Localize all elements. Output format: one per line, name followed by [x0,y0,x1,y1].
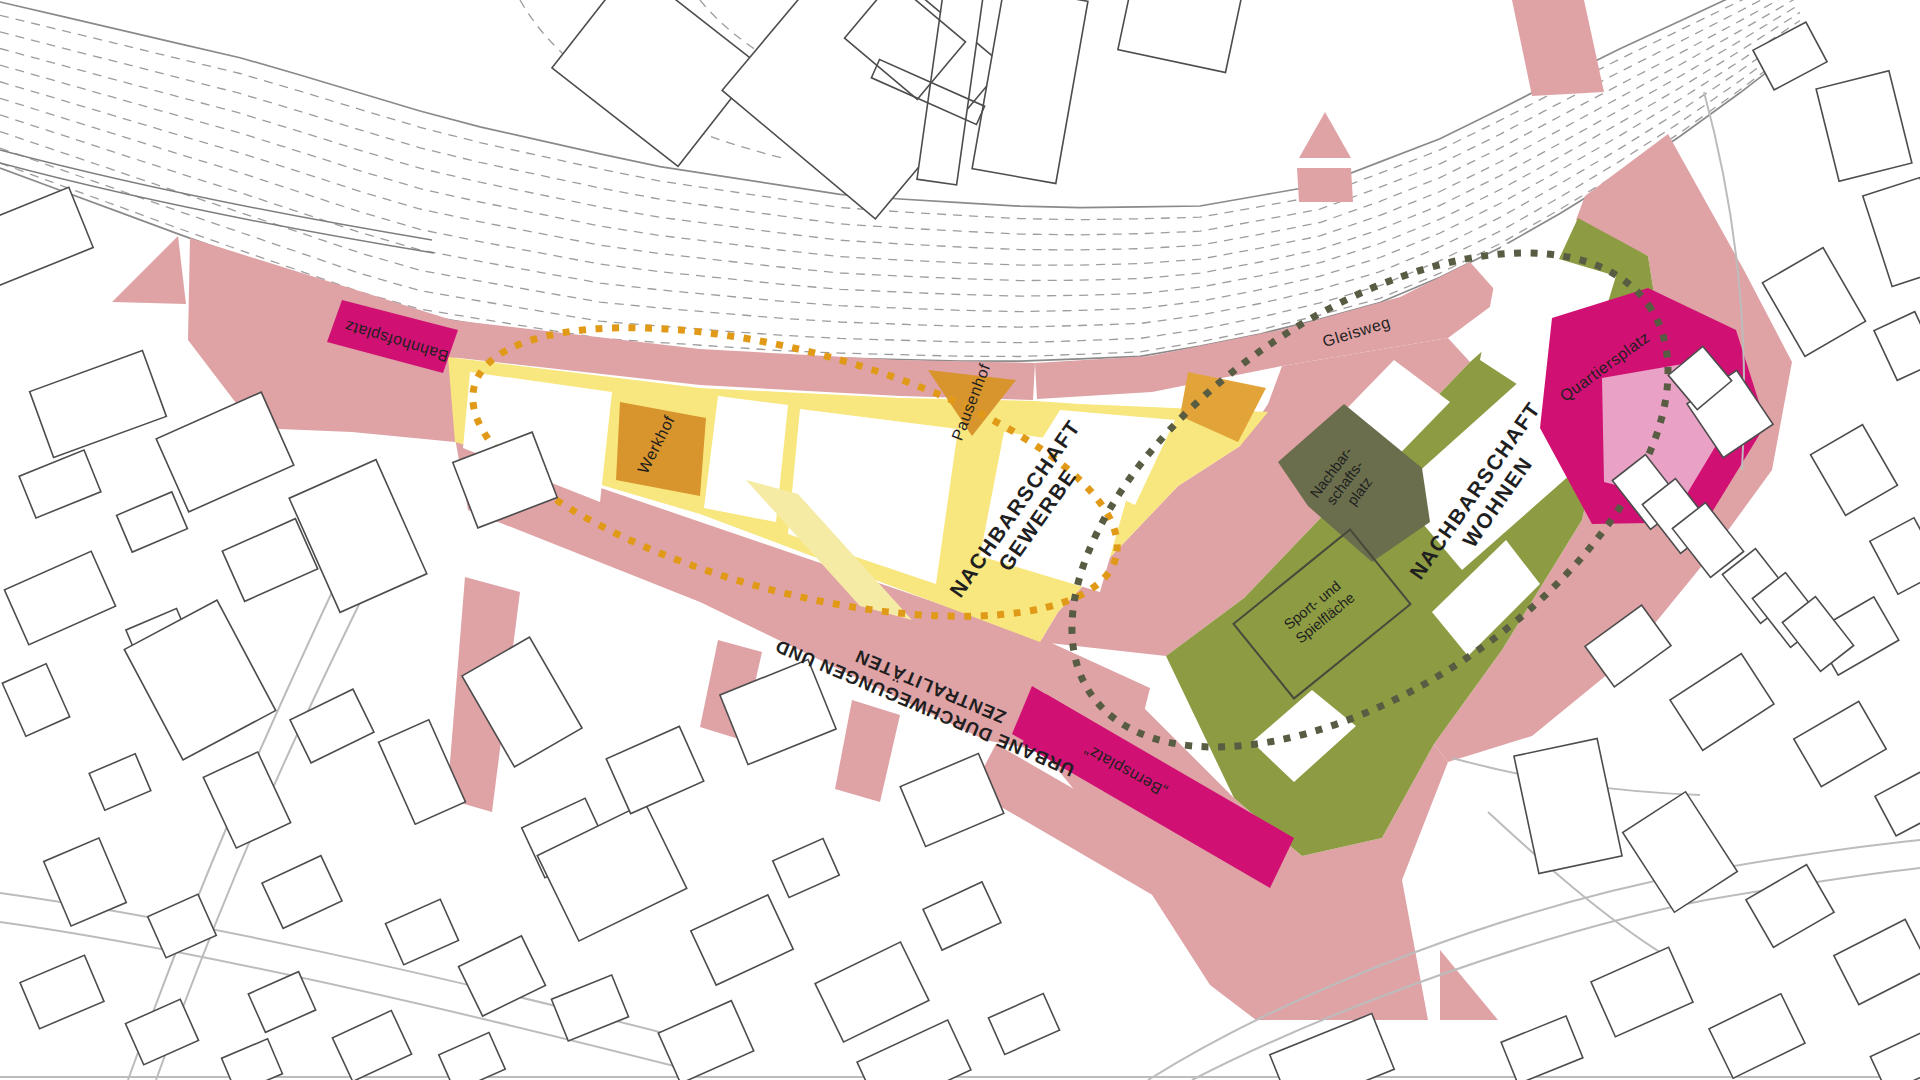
pink-north-column [1512,0,1604,96]
masterplan-diagram: Bahnhofsplatz Werkhof Pausenhof NACHBARS… [0,0,1920,1080]
building-outline [1753,22,1827,90]
building-outline [1863,178,1920,287]
building-outline [1746,865,1834,948]
building-outline [1270,1014,1394,1080]
building-outline [385,899,458,965]
building-outline [1870,1031,1920,1080]
building-outline [439,1033,506,1080]
building-outline [1670,654,1774,751]
building-outline [1875,768,1920,836]
building-outline [1816,71,1912,181]
building-outline [289,460,427,613]
building-outline [923,882,1001,950]
building-outline [551,975,628,1041]
building-outline [1623,792,1738,913]
building-outline [262,856,342,929]
building-outline [89,754,151,810]
building-outline [857,1020,971,1080]
building-outline [20,955,104,1028]
building-outline [773,839,840,898]
building-outline [1834,919,1920,1004]
building-outline [1591,947,1693,1036]
building-outline [1794,701,1886,786]
building-outline [4,551,115,644]
building-outline [1514,738,1622,873]
building-outline [972,0,1088,183]
pink-pentagon-body [1297,168,1353,202]
building-outline [332,1011,411,1080]
building-outline [1874,312,1920,381]
building-outline [458,936,545,1016]
building-outline [30,351,167,458]
building-outline [44,838,127,926]
pink-arrow-west [112,236,186,304]
building-outline [0,187,93,288]
building-outline [117,492,188,552]
building-outline [248,972,315,1033]
building-outline [606,726,703,813]
building-outline [203,752,290,848]
pink-arrow-south [1440,950,1498,1020]
building-outline [1870,518,1920,594]
building-outline [222,1039,283,1080]
building-outline [290,689,374,763]
building-outline [1709,994,1805,1079]
building-outline [988,994,1059,1055]
building-outline [658,1001,753,1080]
pink-pentagon-cap [1299,112,1351,158]
building-outline [1118,0,1242,73]
gewerbe-block [788,409,958,584]
pink-finger-3 [835,700,900,802]
building-outline [19,450,101,518]
building-outline [1501,1016,1583,1080]
building-outline [691,895,793,985]
building-outline [2,664,69,737]
building-outline [815,942,929,1042]
building-outline [1811,425,1898,516]
masterplan-canvas: Bahnhofsplatz Werkhof Pausenhof NACHBARS… [0,0,1920,1080]
